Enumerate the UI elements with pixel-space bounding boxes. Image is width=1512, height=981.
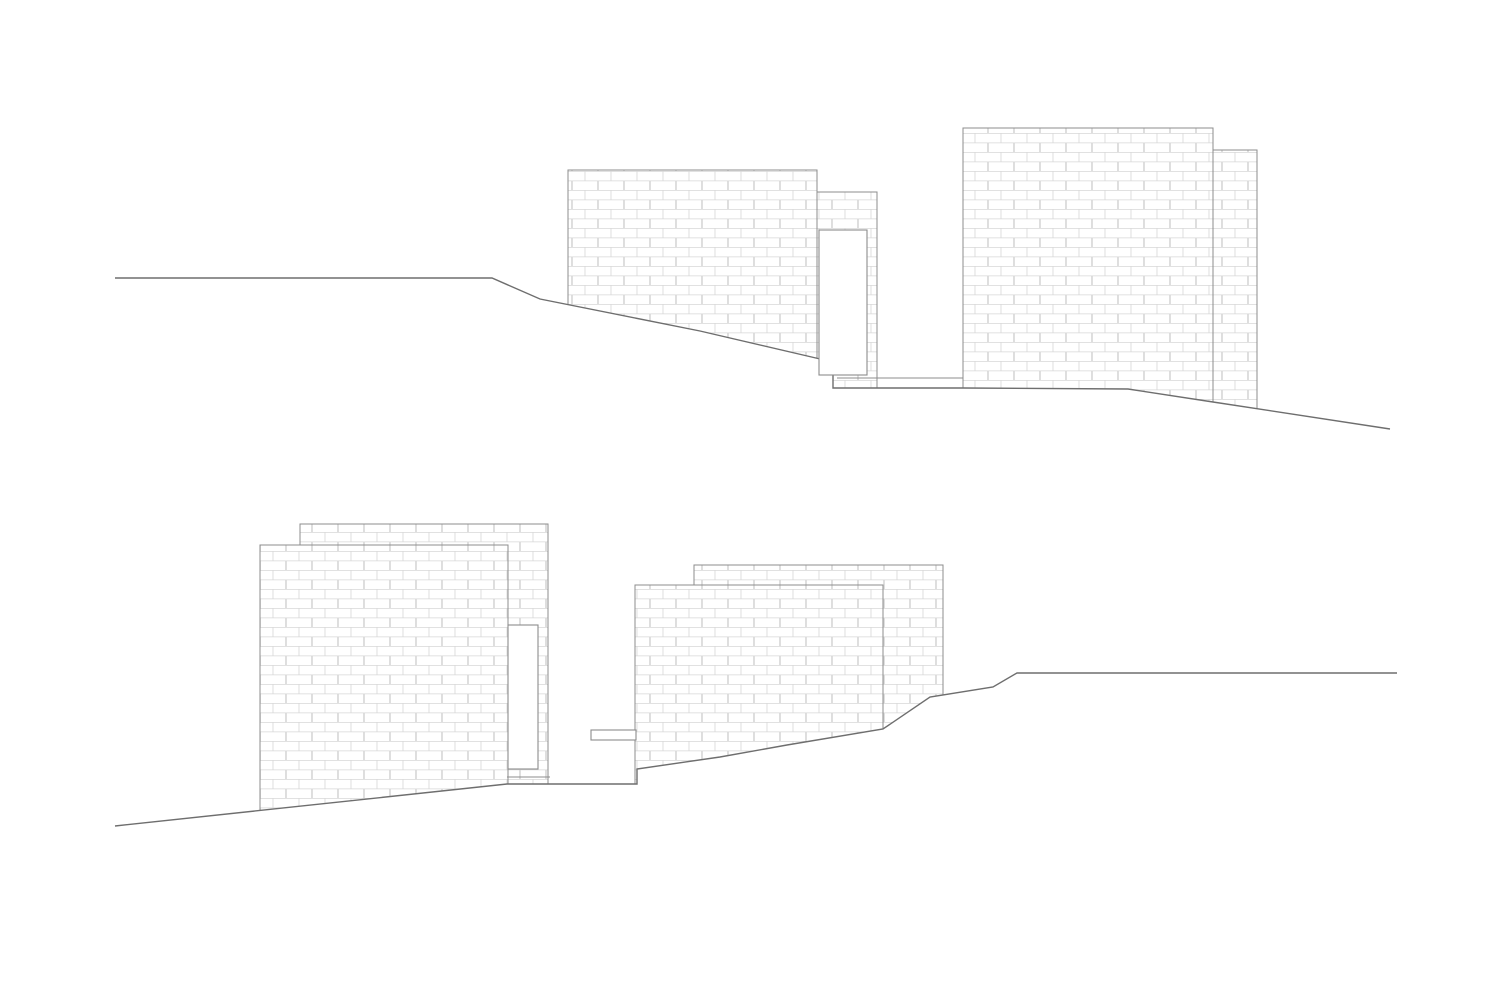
upper-right-large-wall xyxy=(963,128,1213,420)
lower-door-opening xyxy=(508,625,538,769)
upper-door-opening xyxy=(819,230,867,375)
elevation-drawing-canvas xyxy=(0,0,1512,981)
drawing-sheet xyxy=(0,0,1512,981)
lower-bench-step xyxy=(591,730,636,740)
upper-elevation xyxy=(98,128,1404,478)
upper-right-thin-wall xyxy=(1213,150,1257,420)
lower-elevation xyxy=(98,524,1404,940)
